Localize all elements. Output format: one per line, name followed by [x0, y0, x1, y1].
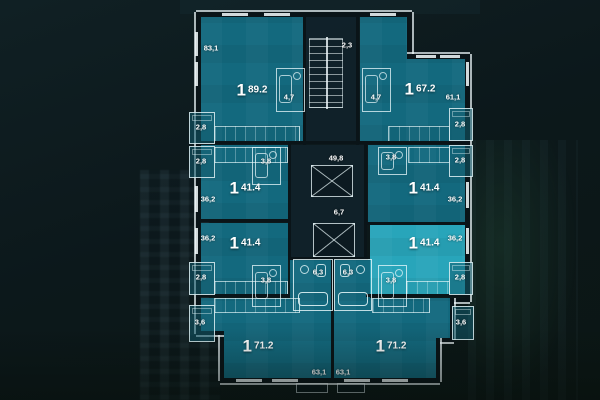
window: [264, 13, 290, 16]
window: [466, 228, 469, 254]
window: [466, 62, 469, 86]
room-area-label: 6,3: [343, 268, 353, 277]
apartment-label: 189.2: [237, 82, 268, 99]
room-area-label: 2,8: [196, 273, 206, 282]
background-trees-photo: [468, 140, 578, 400]
wall: [366, 222, 470, 225]
room-area-label: 4,7: [284, 93, 294, 102]
total-area: 41.4: [420, 183, 439, 194]
apartment-label: 141.4: [409, 235, 440, 252]
total-area: 67.2: [416, 84, 435, 95]
apartment-label: 171.2: [243, 338, 274, 355]
apartment-label: 141.4: [230, 235, 261, 252]
window: [370, 13, 396, 16]
window: [382, 379, 408, 382]
bathroom: [252, 265, 281, 307]
window: [236, 379, 262, 382]
rooms-count: 1: [237, 82, 246, 99]
window: [195, 62, 198, 86]
elevator-shaft: [313, 223, 355, 257]
room-area-label: 4,7: [371, 93, 381, 102]
room-area-label: 63,1: [336, 368, 351, 377]
wall: [407, 12, 412, 58]
room-area-label: 2,8: [455, 156, 465, 165]
wall: [288, 142, 291, 260]
total-area: 41.4: [241, 238, 260, 249]
wall: [196, 219, 290, 222]
window: [195, 228, 198, 254]
room-area-label: 2,3: [342, 41, 352, 50]
room-area-label: 3,6: [456, 318, 466, 327]
entrance-porch: [337, 383, 365, 393]
room-area-label: 2,8: [455, 120, 465, 129]
kitchen-counter: [214, 126, 300, 142]
floorplan-viewport: 189.2 167.2 141.4 141.4 141.4 141.4 171.…: [0, 0, 600, 400]
window: [466, 182, 469, 208]
bathroom: [362, 68, 391, 112]
room-area-label: 2,8: [196, 157, 206, 166]
elevator-shaft: [311, 165, 353, 197]
apartment-label: 167.2: [405, 81, 436, 98]
room-area-label: 3,8: [261, 276, 271, 285]
room-area-label: 3,8: [261, 157, 271, 166]
room-area-label: 3,6: [195, 318, 205, 327]
kitchen-counter: [408, 147, 450, 163]
apartment-label: 171.2: [376, 338, 407, 355]
bathroom: [276, 68, 305, 112]
window: [344, 379, 370, 382]
room-area-label: 2,8: [196, 123, 206, 132]
rooms-count: 1: [409, 180, 418, 197]
window: [222, 13, 248, 16]
window: [272, 379, 298, 382]
bathtub: [338, 292, 368, 306]
total-area: 71.2: [387, 341, 406, 352]
apartment-label: 141.4: [230, 180, 261, 197]
room-area-label: 2,8: [455, 273, 465, 282]
rooms-count: 1: [409, 235, 418, 252]
total-area: 41.4: [420, 238, 439, 249]
rooms-count: 1: [230, 180, 239, 197]
room-area-label: 6,7: [334, 208, 344, 217]
apartment-label: 141.4: [409, 180, 440, 197]
window: [195, 186, 198, 212]
room-area-label: 83,1: [204, 44, 219, 53]
window: [416, 55, 436, 58]
wall: [364, 142, 367, 260]
room-area-label: 3,8: [386, 153, 396, 162]
room-area-label: 6,3: [313, 268, 323, 277]
kitchen-counter: [388, 126, 450, 142]
wall: [196, 141, 470, 144]
room-area-label: 36,2: [448, 195, 463, 204]
room-area-label: 36,2: [201, 195, 216, 204]
total-area: 89.2: [248, 85, 267, 96]
rooms-count: 1: [405, 81, 414, 98]
total-area: 71.2: [254, 341, 273, 352]
room-area-label: 3,8: [386, 276, 396, 285]
room-area-label: 49,8: [329, 154, 344, 163]
rooms-count: 1: [243, 338, 252, 355]
bathtub: [298, 292, 328, 306]
room-area-label: 36,2: [201, 234, 216, 243]
bathroom: [378, 265, 407, 307]
rooms-count: 1: [230, 235, 239, 252]
total-area: 41.4: [241, 183, 260, 194]
room-area-label: 36,2: [448, 234, 463, 243]
wall: [436, 338, 440, 382]
sink: [356, 265, 365, 274]
room-area-label: 61,1: [446, 93, 461, 102]
sink: [300, 265, 309, 274]
stairs: [309, 38, 343, 108]
window: [440, 55, 460, 58]
rooms-count: 1: [376, 338, 385, 355]
entrance-porch: [296, 383, 328, 393]
window: [195, 32, 198, 56]
wall: [220, 333, 224, 381]
room-area-label: 63,1: [312, 368, 327, 377]
wall: [356, 14, 359, 145]
